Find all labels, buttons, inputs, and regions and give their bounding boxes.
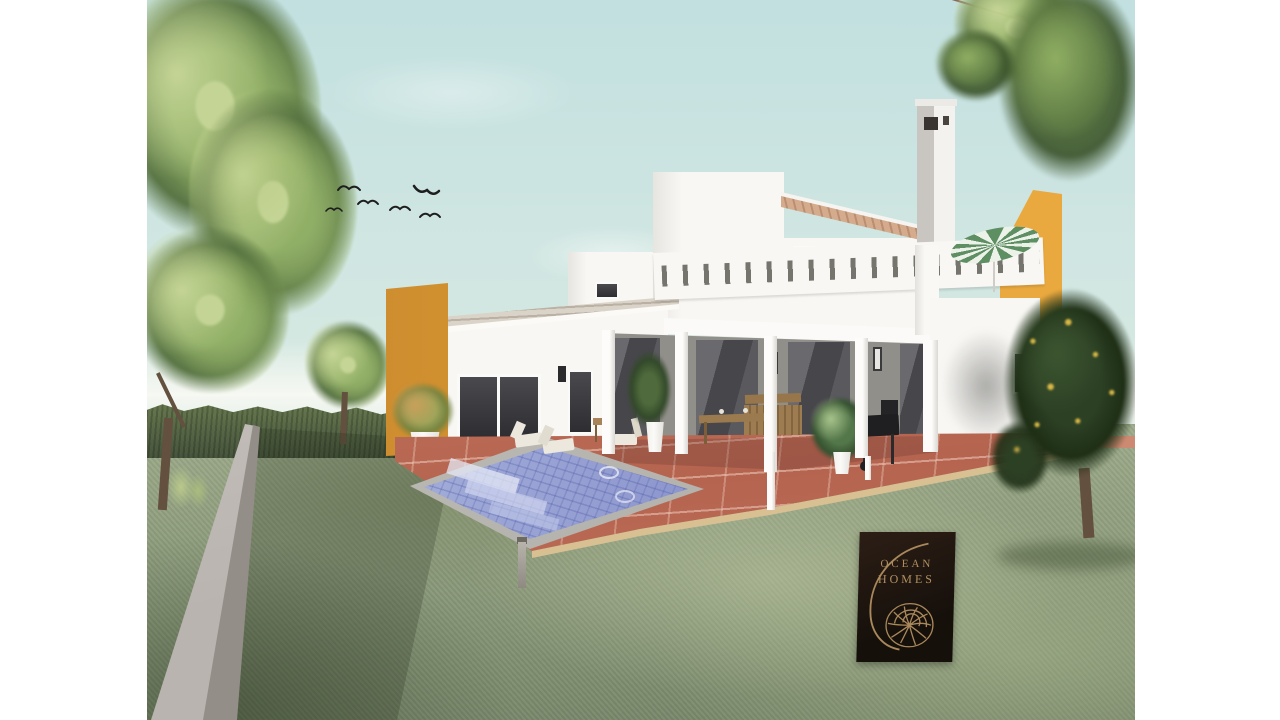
patio-edge-post [767, 452, 775, 510]
villa-rendering: OCEAN HOMES [147, 0, 1135, 720]
tableware [719, 409, 724, 414]
planter-shrub [391, 382, 455, 440]
porch-column [855, 338, 868, 458]
porch-column [675, 332, 688, 454]
porch-column [602, 330, 615, 454]
overhanging-maple-leaves [997, 0, 1135, 182]
ocean-homes-logo-plaque: OCEAN HOMES [856, 532, 955, 662]
wall-lantern [558, 366, 566, 382]
glass-door [568, 370, 593, 434]
chimney-vent [943, 116, 949, 125]
porch-corner-column [923, 340, 938, 452]
bird-icon [338, 186, 360, 190]
logo-line2: HOMES [858, 572, 954, 587]
patio-edge-post [865, 456, 871, 480]
nautilus-shell-icon [859, 538, 952, 658]
bollard-light [518, 542, 526, 588]
logo-line1: OCEAN [859, 558, 955, 570]
door-mullion [497, 377, 500, 437]
grass-tuft [187, 474, 209, 508]
porch-lantern [873, 347, 882, 371]
cloud [327, 55, 577, 130]
deck-chair [614, 434, 637, 445]
tableware [743, 408, 748, 413]
water-ripple [599, 466, 619, 479]
citrus-tree-shadow [997, 542, 1135, 570]
chimney-vent [924, 117, 938, 130]
bird-icon [420, 214, 440, 217]
bbq-leg [891, 434, 894, 464]
water-ripple [615, 490, 635, 503]
bird-flock-graphic [322, 178, 457, 233]
rendering-page: OCEAN HOMES [0, 0, 1280, 720]
overhanging-leaf-cluster [935, 28, 1017, 102]
bird-icon [390, 207, 410, 210]
upper-window [595, 282, 619, 299]
bird-icon [326, 208, 342, 211]
potted-plant [626, 350, 672, 428]
side-table-leg [595, 425, 597, 442]
chimney-cap [915, 99, 957, 106]
background-tree-canopy [305, 320, 391, 410]
table-leg [704, 422, 707, 444]
citrus-tree-lower-branch [989, 420, 1051, 494]
bird-icon [414, 186, 439, 194]
bird-icon [358, 201, 378, 204]
flying-birds [322, 178, 457, 233]
